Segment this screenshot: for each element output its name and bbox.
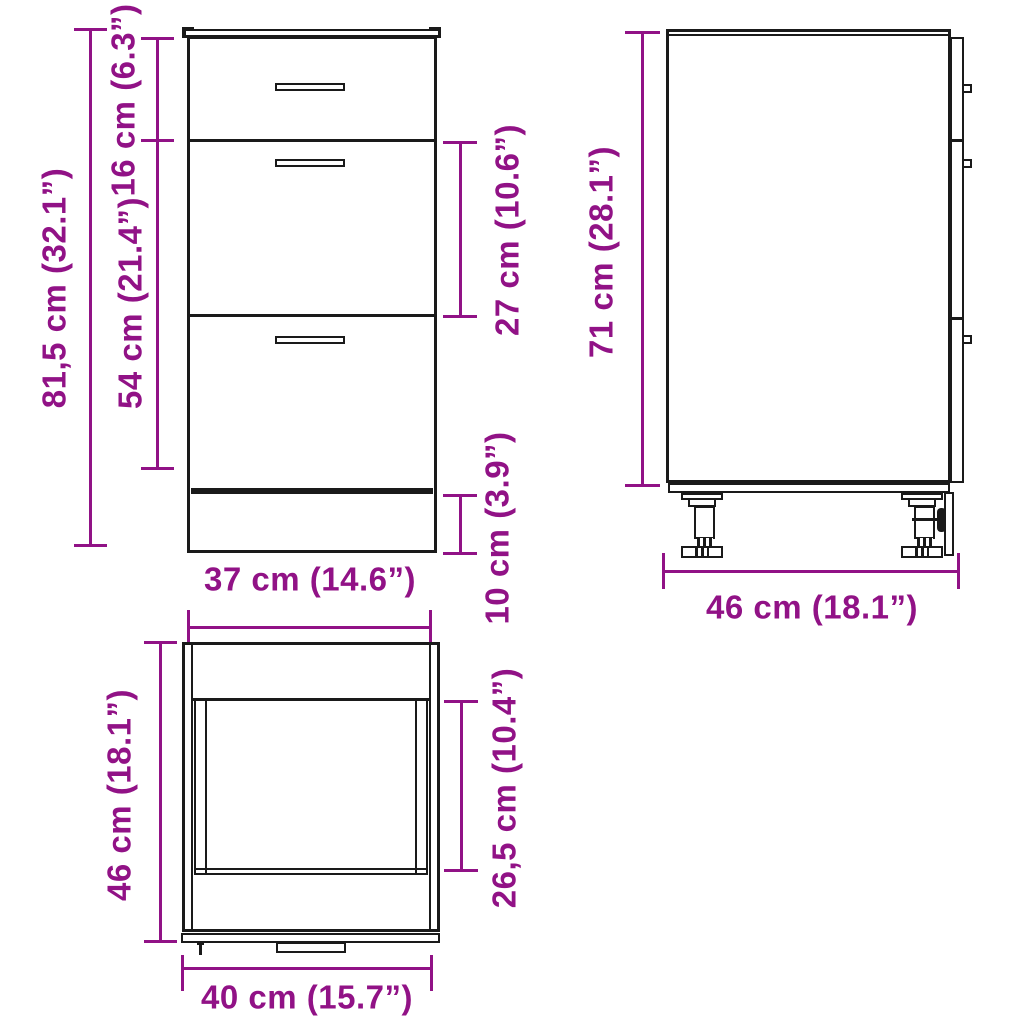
dim-line-side-height — [641, 32, 644, 487]
side-handle-clip-1 — [962, 84, 972, 93]
top-hinge-pin — [199, 945, 202, 955]
dim-tick — [187, 610, 190, 645]
dim-tick — [443, 315, 477, 318]
dim-line-middle-drawer — [459, 142, 462, 318]
dim-label-lower-section: 54 cm (21.4”) — [114, 197, 147, 409]
top-opening-right-inner — [415, 701, 417, 873]
dim-line-side-depth — [663, 570, 960, 573]
dim-label-front-width: 37 cm (14.6”) — [204, 563, 416, 596]
dim-label-inner-depth: 26,5 cm (10.4”) — [488, 668, 521, 908]
top-opening-left-outer — [194, 701, 196, 873]
dim-tick — [430, 955, 433, 991]
side-strip-divider-2 — [950, 317, 964, 320]
dim-tick — [74, 544, 107, 547]
dim-tick — [625, 31, 660, 34]
top-left-wall-line — [191, 644, 193, 930]
dim-label-total-height: 81,5 cm (32.1”) — [38, 168, 71, 408]
leg-stem — [914, 506, 935, 539]
dim-line-front-width — [188, 626, 432, 629]
dim-tick — [444, 869, 478, 872]
front-drawer3-handle — [275, 336, 345, 344]
dim-label-middle-drawer: 27 cm (10.6”) — [491, 124, 524, 336]
top-opening-bottom-line-2 — [194, 873, 428, 875]
dim-label-side-depth: 46 cm (18.1”) — [706, 591, 918, 624]
dim-tick — [141, 467, 174, 470]
dim-tick — [662, 553, 665, 589]
dim-label-top-width: 40 cm (15.7”) — [201, 981, 413, 1014]
front-divider-1 — [188, 139, 436, 142]
dim-tick — [957, 553, 960, 589]
side-bottom-board — [668, 483, 950, 493]
dim-line-top-depth — [159, 642, 162, 943]
front-drawer1-handle — [275, 83, 345, 91]
top-cabinet-outline — [182, 642, 440, 932]
front-cabinet-body — [187, 36, 437, 553]
side-strip-divider-1 — [950, 139, 964, 142]
top-opening-bottom-line-1 — [194, 868, 428, 870]
front-drawer2-handle — [275, 159, 345, 167]
leg-stem — [694, 506, 715, 539]
side-handle-clip-2 — [962, 159, 972, 168]
dim-line-lower-section — [156, 141, 159, 470]
side-top-inner-line — [669, 34, 948, 36]
dim-tick — [144, 940, 177, 943]
leg-foot-notch — [695, 548, 709, 556]
dim-tick — [429, 610, 432, 645]
dim-tick — [144, 641, 177, 644]
leg-foot-notch — [915, 548, 929, 556]
dim-tick — [444, 700, 478, 703]
dim-line-plinth — [459, 495, 462, 555]
dim-label-top-drawer: 16 cm (6.3”) — [107, 3, 140, 196]
front-plinth-divider — [191, 488, 433, 494]
top-opening-left-inner — [205, 701, 207, 873]
top-opening-right-outer — [426, 701, 428, 873]
dim-tick — [74, 28, 107, 31]
dim-tick — [625, 484, 660, 487]
top-handle — [276, 942, 346, 953]
dim-label-side-height: 71 cm (28.1”) — [585, 146, 618, 358]
side-cabinet-body — [666, 29, 951, 483]
dim-line-top-width — [182, 967, 433, 970]
front-divider-2 — [188, 314, 436, 317]
diagram-canvas: 81,5 cm (32.1”) 16 cm (6.3”) 54 cm (21.4… — [0, 0, 1024, 1024]
dim-tick — [443, 552, 477, 555]
dim-tick — [443, 141, 477, 144]
side-drawer-front-strip — [950, 37, 964, 483]
dim-tick — [443, 494, 477, 497]
dim-line-total-height — [89, 29, 92, 547]
top-front-band-line — [192, 698, 430, 701]
dim-line-inner-depth — [460, 701, 463, 872]
dim-tick — [181, 955, 184, 991]
dim-line-top-drawer — [156, 38, 159, 141]
dim-label-plinth: 10 cm (3.9”) — [481, 431, 514, 624]
side-handle-clip-3 — [962, 335, 972, 344]
dim-label-top-depth: 46 cm (18.1”) — [103, 689, 136, 901]
top-right-wall-line — [429, 644, 431, 930]
dim-tick — [141, 37, 174, 40]
leg-clip-knob — [937, 508, 946, 532]
